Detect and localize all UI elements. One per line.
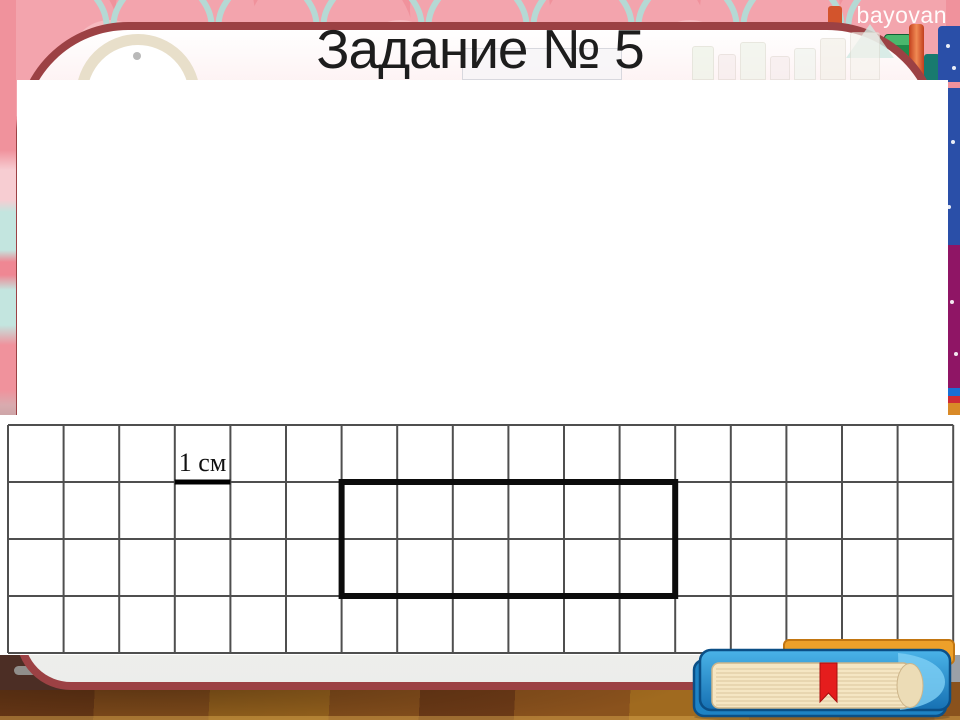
- content-whitebox: [17, 80, 948, 417]
- star-dot-icon: [954, 352, 958, 356]
- watermark: bayovan: [857, 2, 947, 29]
- star-dot-icon: [950, 300, 954, 304]
- star-dot-icon: [951, 140, 955, 144]
- unit-label: 1 см: [179, 448, 227, 477]
- squared-paper: 1 см: [0, 415, 960, 655]
- grid-svg: 1 см: [0, 415, 960, 655]
- storybook-icon: [688, 636, 960, 720]
- slide-background: { "slide": { "title": "Задание № 5", "wa…: [0, 0, 960, 720]
- page-title: Задание № 5: [0, 21, 960, 79]
